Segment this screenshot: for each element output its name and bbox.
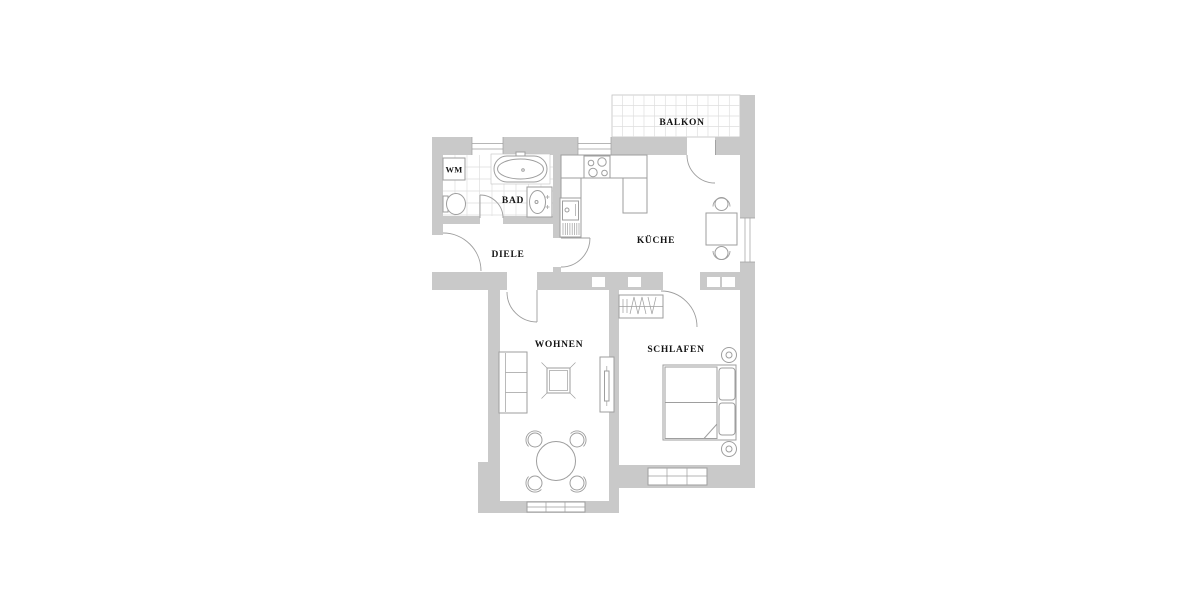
label-washing-machine: WM	[445, 165, 462, 175]
balcony-door	[687, 140, 716, 183]
label-bedroom: SCHLAFEN	[647, 345, 704, 355]
label-balcony: BALKON	[659, 118, 704, 128]
nightstand	[722, 348, 737, 363]
balcony-floor	[612, 95, 740, 137]
kitchen-sink-unit	[560, 198, 581, 237]
kitchen-right-window	[740, 218, 755, 262]
wardrobe	[619, 295, 663, 318]
kitchen-chair	[713, 247, 730, 260]
bathtub	[491, 152, 550, 184]
tv-board	[600, 357, 614, 412]
bedroom-window-radiator	[648, 468, 707, 485]
kitchen-top-window	[578, 137, 611, 155]
dining-chair	[526, 476, 542, 492]
living-room-window-radiator	[527, 502, 585, 512]
kitchen-door	[561, 238, 590, 267]
coffee-table	[542, 363, 576, 399]
label-hallway: DIELE	[491, 250, 524, 260]
bathroom-door	[480, 195, 503, 218]
bathroom-sink	[527, 187, 552, 217]
floor-plan-svg: BALKON WM BAD DIELE KÜCHE WOHNEN SCHLAFE…	[0, 0, 1200, 600]
label-living-room: WOHNEN	[535, 340, 584, 350]
stove	[584, 156, 610, 178]
dining-table	[537, 442, 576, 481]
bedroom-door	[661, 291, 697, 327]
label-bathroom: BAD	[502, 196, 524, 206]
double-bed	[663, 365, 736, 440]
nightstand	[722, 442, 737, 457]
living-room-door	[507, 290, 537, 322]
dining-chair	[570, 476, 586, 492]
floor-plan-canvas: BALKON WM BAD DIELE KÜCHE WOHNEN SCHLAFE…	[0, 0, 1200, 600]
dining-chair	[570, 431, 586, 447]
dining-chair	[526, 431, 542, 447]
bathroom-window	[472, 137, 503, 155]
toilet	[443, 194, 466, 215]
sofa	[499, 352, 527, 413]
label-kitchen: KÜCHE	[637, 233, 675, 246]
kitchen-chair	[713, 198, 730, 211]
kitchen-table	[706, 213, 737, 245]
entrance-door	[443, 233, 481, 271]
